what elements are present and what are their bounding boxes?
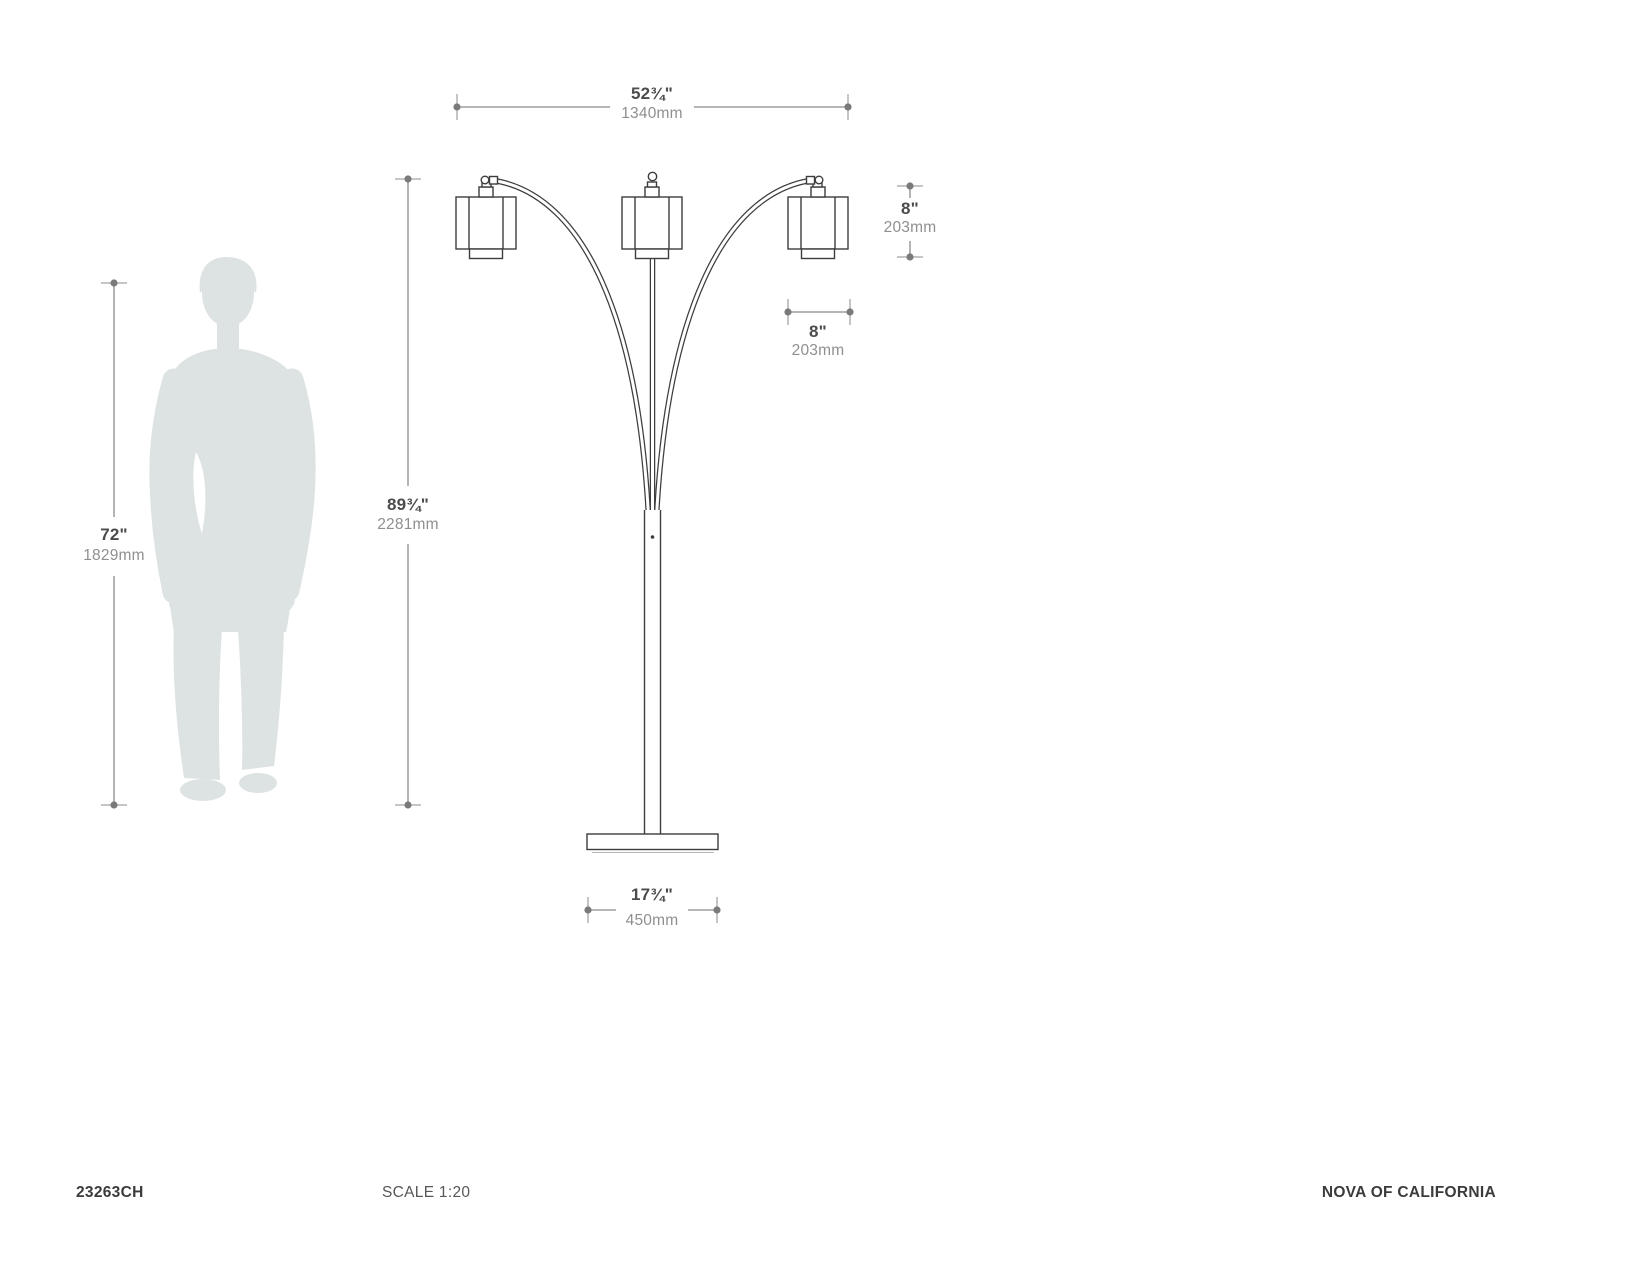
line-art-canvas [0,0,1650,1275]
overall-width-inches-label: 52¾" [582,84,722,104]
pole-screw [651,535,655,539]
base-width-metric-label: 450mm [582,912,722,931]
person-right-leg [238,625,284,770]
finial-right [815,176,823,184]
lamp-shade-center [622,172,682,258]
base-width-inches-label: 17¾" [582,885,722,905]
lamp-shade-right [788,176,848,258]
person-right-foot [239,773,277,793]
spec-sheet: 52¾" 1340mm 89¾" 2281mm 72" 1829mm 8" 20… [0,0,1650,1275]
shade-width-inches-label: 8" [748,322,888,342]
fixture-height-metric-label: 2281mm [338,516,478,535]
person-hips [168,552,292,632]
overall-width-metric-label: 1340mm [582,105,722,124]
person-left-foot [180,779,226,801]
lamp-shade-left [456,176,516,258]
shade-height-metric-label: 203mm [840,219,980,238]
model-number: 23263CH [76,1184,144,1202]
finial-center [648,172,656,180]
arc-connector-left [490,177,498,185]
lamp-base [587,834,718,853]
lamp-pole [645,510,661,834]
person-height-metric-label: 1829mm [44,547,184,566]
person-height-inches-label: 72" [44,525,184,545]
person-left-leg [173,625,222,780]
brand-name: NOVA OF CALIFORNIA [1322,1184,1496,1202]
arc-connector-right [807,177,815,185]
finial-left [481,176,489,184]
shade-height-inches-label: 8" [840,199,980,219]
lamp-drawing [456,172,848,852]
dim-fixture-height [395,175,421,808]
scale-note: SCALE 1:20 [382,1184,470,1202]
shade-width-metric-label: 203mm [748,342,888,361]
fixture-height-inches-label: 89¾" [338,495,478,515]
